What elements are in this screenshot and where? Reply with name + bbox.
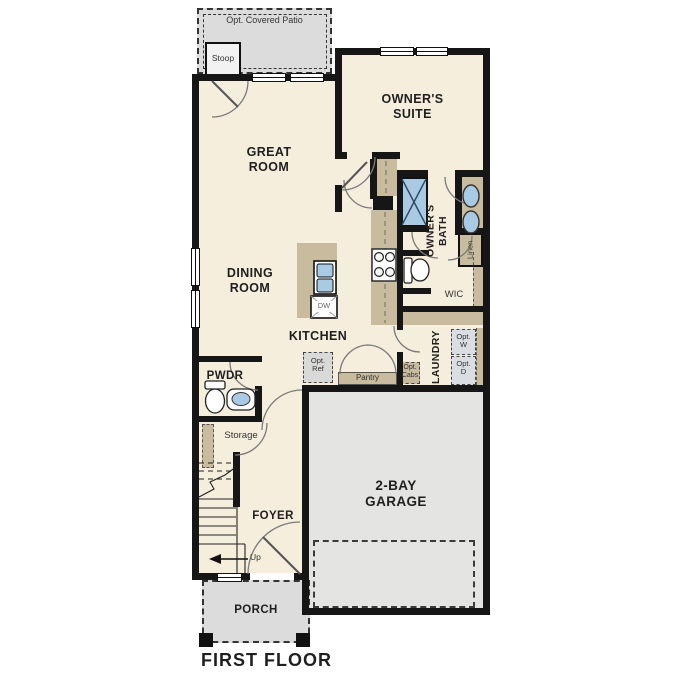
great-room-label: GREAT ROOM [200, 145, 338, 175]
linen-label: Linen [458, 235, 483, 265]
pwdr-label: PWDR [197, 370, 253, 384]
burner-3 [375, 268, 384, 277]
vanity-sink-1 [463, 185, 479, 207]
opt-ref-label: Opt. Ref [303, 357, 333, 374]
porch-label: PORCH [212, 604, 300, 618]
wic-label: WIC [428, 290, 480, 300]
opt-dryer-label: Opt. D [451, 360, 476, 377]
door-arc-garage-entry [262, 390, 302, 430]
pwdr-sink-basin [232, 393, 250, 406]
garage-label: 2-BAY GARAGE [309, 478, 483, 510]
island-sink-basin-2 [317, 279, 333, 292]
door-arc-pantry-left [340, 345, 369, 374]
up-arrow-head [209, 554, 221, 564]
island-sink-basin-1 [317, 264, 333, 277]
stoop-label: Stoop [205, 54, 241, 63]
floor-title: FIRST FLOOR [201, 650, 401, 671]
up-label: Up [250, 553, 272, 562]
burner-2 [386, 253, 395, 262]
door-arc-laundry [394, 326, 420, 352]
storage-label: Storage [214, 431, 268, 441]
vanity-sink-2 [463, 211, 479, 233]
laundry-label: LAUNDRY [427, 328, 445, 386]
opt-cabs-label: Opt. Cabs [399, 364, 421, 379]
porch-post-right [296, 633, 310, 647]
dishwasher-label: DW [311, 302, 337, 310]
burner-1 [375, 253, 384, 262]
pantry-label: Pantry [338, 374, 397, 383]
owners-bath-label: OWNER'S BATH [423, 186, 451, 276]
door-arc-hall-kitchen [344, 180, 372, 208]
pwdr-toilet-bowl [206, 389, 225, 413]
porch-post-left [199, 633, 213, 647]
kitchen-label: KITCHEN [272, 329, 364, 344]
door-leaf-stoop [212, 81, 238, 107]
dining-room-label: DINING ROOM [195, 266, 305, 296]
door-arc-owners-suite [342, 157, 375, 190]
owners-suite-label: OWNER'S SUITE [342, 92, 483, 122]
foyer-label: FOYER [242, 510, 304, 524]
burner-4 [386, 268, 395, 277]
patio-label: Opt. Covered Patio [197, 16, 332, 26]
door-arc-pantry-right [367, 345, 396, 374]
first-floor-plan: Opt. Covered Patio Stoop GREAT ROOM OWNE… [0, 0, 687, 687]
opt-washer-label: Opt. W [451, 333, 476, 350]
door-leaf-owners-suite [342, 162, 367, 188]
